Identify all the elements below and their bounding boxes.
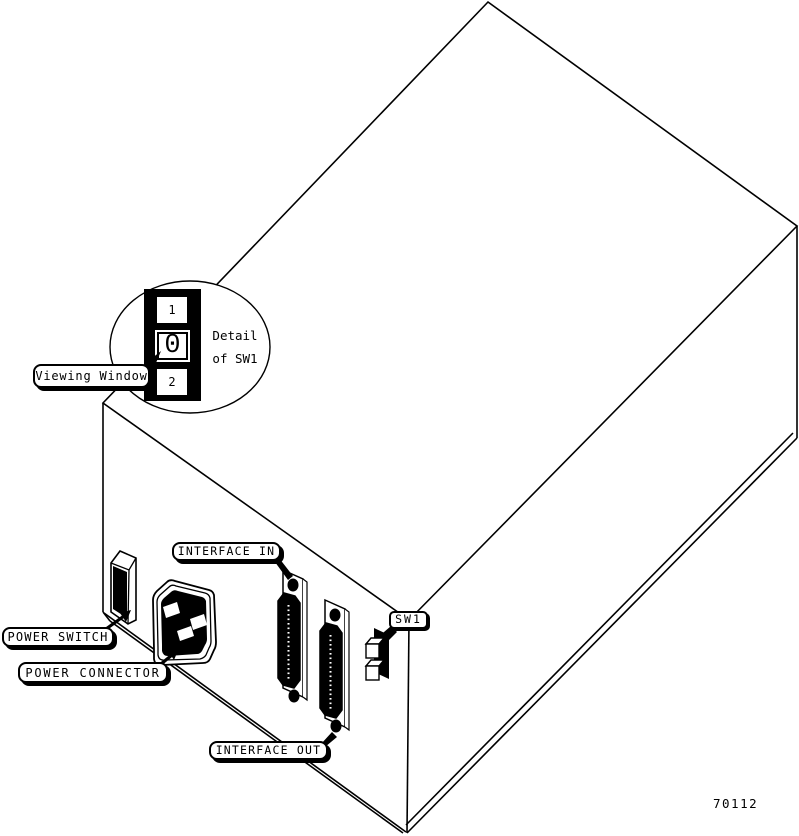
label-viewing-window: Viewing Window <box>33 364 150 388</box>
label-power-switch: POWER SWITCH <box>2 627 114 647</box>
device-line-art <box>0 0 799 836</box>
interface-in-arrow <box>275 558 293 580</box>
device-outline <box>103 2 797 833</box>
detail-title-line1: Detail <box>205 324 265 347</box>
power-connector-component <box>153 580 216 665</box>
label-interface-in: INTERFACE IN <box>172 542 281 561</box>
panel-bottom-inner <box>110 621 403 833</box>
right-bottom-outer <box>407 438 797 833</box>
power-pin <box>177 626 194 641</box>
top-face <box>103 2 797 620</box>
switch-position-0: 0 <box>157 332 188 360</box>
label-power-connector: POWER CONNECTOR <box>18 662 168 683</box>
label-text: INTERFACE OUT <box>216 745 322 757</box>
panel-bevel <box>103 612 110 621</box>
switch-position-1: 1 <box>157 297 187 323</box>
label-sw1: SW1 <box>389 611 428 629</box>
interface-in-connector <box>278 570 307 703</box>
sw1-switch-component <box>366 626 397 680</box>
interface-out-connector <box>320 600 349 733</box>
power-connector-arrow <box>168 648 179 660</box>
screw-hole <box>288 579 299 592</box>
sw1-detail-switch: 1 0 2 <box>144 289 201 401</box>
corner-edge <box>407 620 409 833</box>
position-label: 2 <box>168 375 175 389</box>
label-text: SW1 <box>395 614 422 626</box>
screw-hole <box>289 690 300 703</box>
figure-number: 70112 <box>713 796 758 811</box>
panel-bottom-outer <box>104 613 406 832</box>
detail-title: Detail of SW1 <box>205 324 265 370</box>
power-switch-component <box>111 551 136 624</box>
position-label: 0 <box>164 331 180 361</box>
label-text: Viewing Window <box>35 370 147 382</box>
power-pin <box>163 602 180 618</box>
power-switch-arrow <box>120 610 131 622</box>
label-interface-out: INTERFACE OUT <box>209 741 328 760</box>
label-text: POWER SWITCH <box>7 631 108 643</box>
power-pin <box>190 614 207 630</box>
figure-canvas: 1 0 2 Detail of SW1 Viewing Window <box>0 0 799 836</box>
viewing-window-frame: 0 <box>153 328 192 364</box>
position-label: 1 <box>168 303 175 317</box>
right-bottom-inner <box>406 433 793 825</box>
label-text: INTERFACE IN <box>178 546 275 558</box>
pointer-arrows <box>0 0 799 836</box>
label-text: POWER CONNECTOR <box>25 667 160 679</box>
detail-title-line2: of SW1 <box>205 347 265 370</box>
switch-position-2: 2 <box>157 369 187 395</box>
